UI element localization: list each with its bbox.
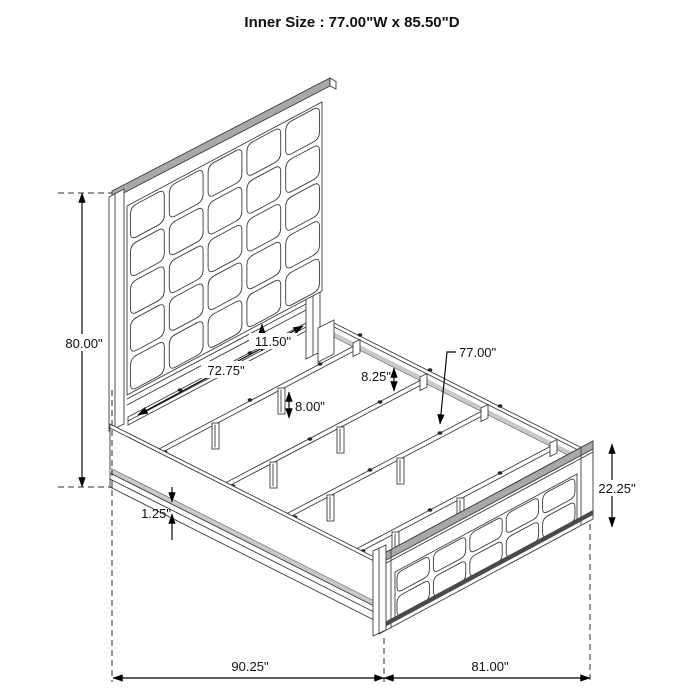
dim-rail-to-slat-drop: 8.25" — [361, 368, 394, 391]
screw-dot — [318, 362, 323, 365]
dim-center-leg-height: 8.00" — [289, 392, 325, 418]
center-support-leg — [270, 462, 277, 488]
screw-dot — [378, 400, 383, 403]
right-rail-shading — [332, 331, 582, 462]
dim-label-slat-length: 77.00" — [459, 345, 497, 360]
screw-dot — [428, 368, 433, 371]
dim-label-overall-depth: 90.25" — [231, 659, 269, 674]
dim-panel-to-rail-gap: 11.50" — [249, 324, 297, 351]
left-rail-lip-shading — [110, 468, 380, 609]
dim-headboard-height: 80.00" — [62, 193, 104, 487]
screw-dot — [308, 437, 313, 440]
footboard — [379, 441, 593, 634]
dim-label-head-inner-width: 72.75" — [207, 363, 245, 378]
slat-bracket — [481, 405, 488, 422]
dim-footboard-height: 22.25" — [594, 444, 640, 527]
screw-dot — [498, 471, 503, 474]
slat-bracket — [420, 374, 427, 391]
headboard-left-post — [109, 189, 124, 431]
dim-label-panel-to-rail-gap: 11.50" — [255, 334, 292, 349]
slat-top-edge — [227, 380, 421, 482]
bed-dimension-diagram: Inner Size : 77.00"W x 85.50"D — [0, 0, 700, 700]
center-support-leg — [337, 427, 344, 453]
screw-dot — [368, 468, 373, 471]
screw-dot — [438, 431, 443, 434]
center-support-leg — [397, 458, 404, 484]
slat-bracket — [550, 440, 557, 457]
dim-label-headboard-height: 80.00" — [65, 336, 103, 351]
bracket-bolt-hole — [322, 335, 329, 342]
screw-dot — [248, 398, 253, 401]
bracket-bolt-hole — [322, 348, 329, 355]
headboard-cap-end — [330, 78, 336, 89]
dim-label-rail-to-slat-drop: 8.25" — [361, 369, 391, 384]
center-support-leg — [278, 388, 285, 414]
dim-label-rail-lip: 1.25" — [141, 506, 171, 521]
right-rail-line — [332, 326, 582, 452]
screw-dot — [358, 333, 363, 336]
dim-label-footboard-height: 22.25" — [598, 481, 636, 496]
dim-overall-depth: 90.25" — [113, 659, 384, 678]
center-support-leg — [327, 495, 334, 521]
screw-dot — [428, 508, 433, 511]
screw-dot — [498, 404, 503, 407]
left-side-rail — [110, 424, 380, 623]
dim-overall-width: 81.00" — [384, 659, 590, 678]
slat-bracket — [353, 340, 360, 357]
center-support-leg — [212, 423, 219, 449]
left-rail-face — [110, 424, 380, 623]
corner-post-face — [373, 545, 386, 636]
dim-label-overall-width: 81.00" — [471, 659, 509, 674]
bed-drawing — [109, 78, 593, 636]
corner-post — [373, 545, 386, 636]
dim-label-center-leg-height: 8.00" — [295, 399, 325, 414]
diagram-canvas: Inner Size : 77.00"W x 85.50"D — [0, 0, 700, 700]
diagram-title: Inner Size : 77.00"W x 85.50"D — [244, 14, 459, 31]
